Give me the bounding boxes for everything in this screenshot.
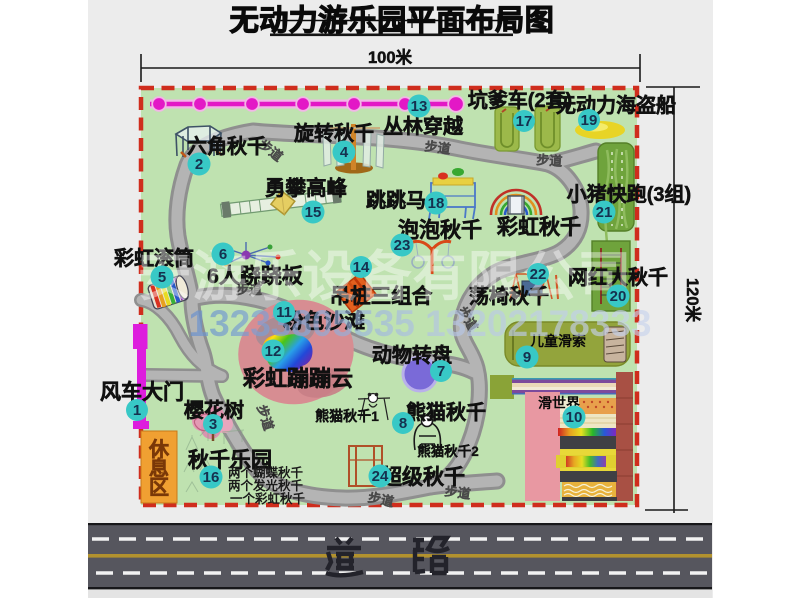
svg-text:120米: 120米: [683, 278, 703, 323]
svg-text:12: 12: [265, 343, 282, 360]
svg-text:24: 24: [372, 468, 389, 485]
svg-text:步道: 步道: [536, 152, 563, 169]
svg-text:18: 18: [428, 195, 445, 212]
svg-text:22: 22: [530, 266, 547, 283]
svg-text:5: 5: [158, 269, 166, 286]
svg-text:17: 17: [516, 113, 533, 130]
svg-text:勇攀高峰: 勇攀高峰: [265, 176, 347, 200]
svg-text:两个蝴蝶秋千: 两个蝴蝶秋千: [228, 465, 304, 480]
svg-text:13233805535 13202178333: 13233805535 13202178333: [189, 303, 652, 344]
svg-text:熊猫秋千: 熊猫秋千: [406, 400, 486, 424]
svg-text:19: 19: [581, 112, 598, 129]
svg-text:7: 7: [437, 363, 445, 380]
svg-text:熊猫秋千1: 熊猫秋千1: [315, 408, 379, 424]
svg-text:小猪快跑(3组): 小猪快跑(3组): [567, 182, 691, 206]
svg-text:旋转秋千: 旋转秋千: [293, 121, 374, 145]
svg-text:熊猫秋千2: 熊猫秋千2: [417, 443, 479, 459]
svg-text:11: 11: [276, 304, 292, 321]
svg-text:超级秋千: 超级秋千: [381, 465, 465, 489]
svg-text:100米: 100米: [368, 47, 413, 67]
svg-text:2: 2: [195, 156, 203, 173]
svg-text:9: 9: [523, 349, 531, 366]
svg-text:无动力海盗船: 无动力海盗船: [556, 93, 676, 117]
svg-text:15: 15: [305, 204, 322, 221]
svg-text:一个彩虹秋千: 一个彩虹秋千: [230, 491, 306, 506]
svg-text:10: 10: [566, 409, 583, 426]
svg-text:丛林穿越: 丛林穿越: [383, 114, 464, 138]
svg-text:23: 23: [394, 237, 411, 254]
svg-text:跳跳马: 跳跳马: [366, 188, 426, 212]
svg-text:彩虹秋千: 彩虹秋千: [496, 216, 581, 239]
svg-text:区: 区: [149, 477, 169, 499]
svg-text:1: 1: [133, 402, 141, 419]
svg-text:8: 8: [399, 415, 407, 432]
svg-text:彩虹蹦蹦云: 彩虹蹦蹦云: [242, 366, 353, 391]
svg-text:21: 21: [596, 204, 613, 221]
svg-text:6: 6: [219, 246, 227, 263]
svg-text:4: 4: [340, 144, 349, 161]
svg-text:16: 16: [203, 469, 220, 486]
svg-text:20: 20: [610, 288, 627, 305]
svg-text:两个发光秋千: 两个发光秋千: [228, 478, 304, 493]
svg-text:3: 3: [209, 416, 217, 433]
svg-text:14: 14: [353, 259, 370, 276]
svg-text:13: 13: [411, 98, 428, 115]
